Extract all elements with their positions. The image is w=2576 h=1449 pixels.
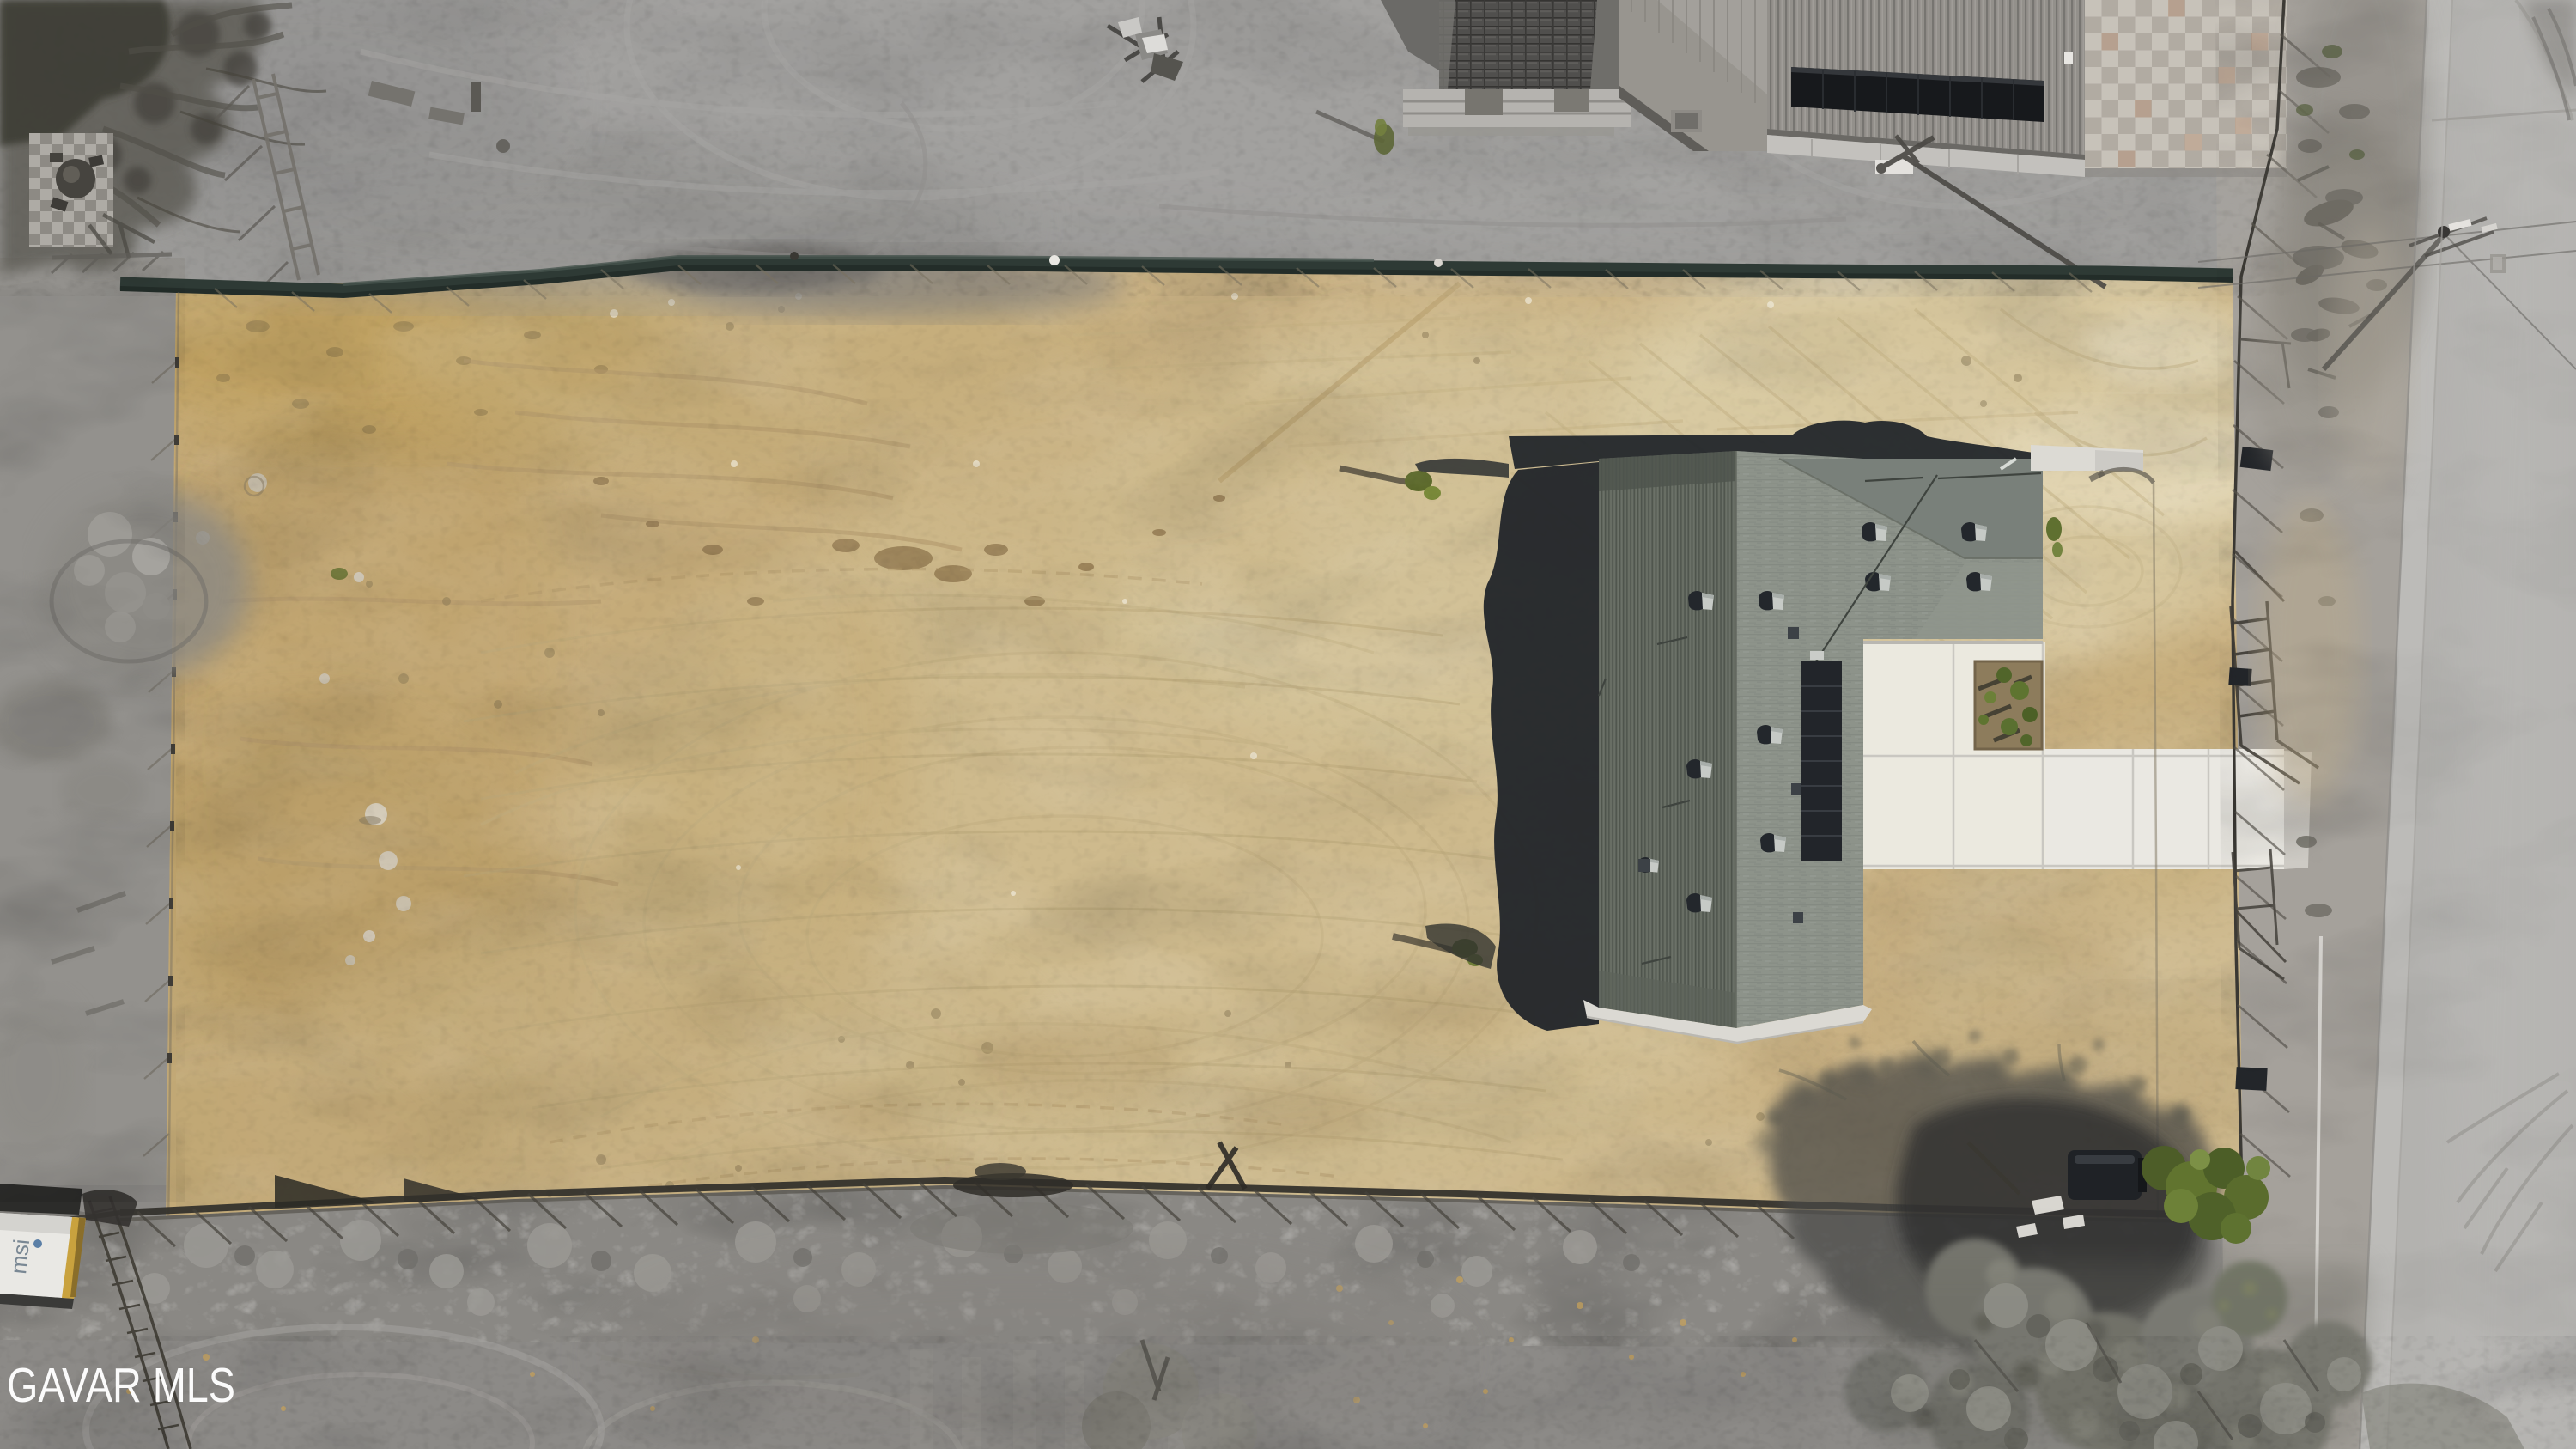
- svg-text:GAVAR MLS: GAVAR MLS: [7, 1358, 235, 1413]
- svg-text:msi: msi: [5, 1238, 34, 1275]
